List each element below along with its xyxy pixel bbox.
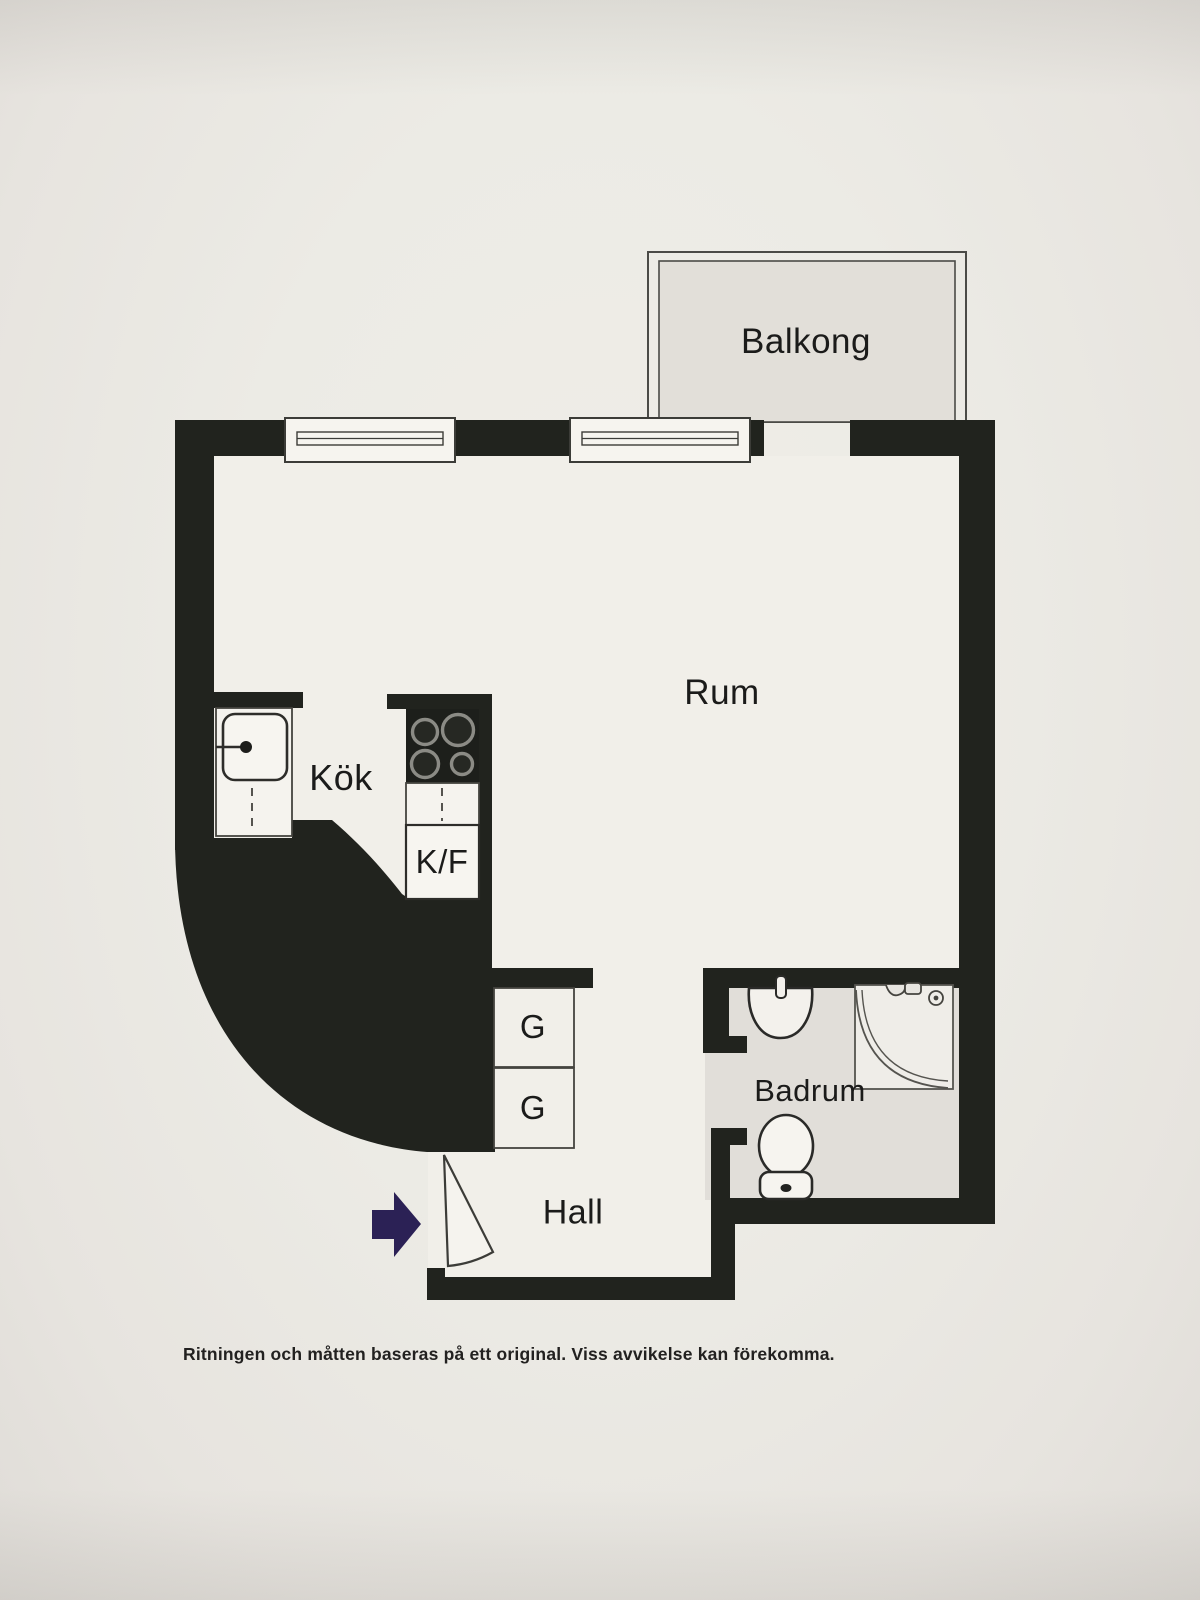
shower-drain-dot [934, 996, 939, 1001]
shower-handle-icon [905, 983, 921, 994]
disclaimer-text: Ritningen och måtten baseras på ett orig… [183, 1344, 835, 1365]
wall-kitchen-stub-right [387, 694, 492, 709]
toilet-icon [759, 1115, 813, 1199]
wall-kitchen-stub-left [175, 692, 303, 708]
shower-icon [855, 983, 953, 1089]
floor-plan-page: Balkong Rum Kök K/F G G Hall Badrum Ritn… [0, 0, 1200, 1600]
entrance-arrow-icon [372, 1192, 421, 1257]
wardrobe-top-label: G [520, 1008, 546, 1046]
entrance-opening-floor [428, 1150, 445, 1272]
wall-above-wardrobes [433, 968, 593, 988]
wall-bathroom-bottom [711, 1198, 995, 1224]
window-icon [570, 418, 750, 462]
basin-faucet-icon [776, 976, 786, 998]
bathroom-label: Badrum [754, 1073, 866, 1109]
window-icon [285, 418, 455, 462]
wall-bathroom-left-lower [711, 1128, 730, 1203]
wall-kitchen-column [478, 694, 492, 986]
wall-top-2 [453, 420, 572, 456]
main-room-label: Rum [684, 673, 759, 713]
hall-label: Hall [543, 1194, 604, 1233]
wall-bathroom-door-stub-upper [711, 1036, 747, 1053]
wardrobe-bottom-label: G [520, 1089, 546, 1127]
toilet-flush-dot [781, 1184, 792, 1192]
wall-hall-bottom [427, 1277, 735, 1300]
kitchen-label: Kök [309, 757, 373, 799]
balcony-label: Balkong [741, 322, 871, 362]
kitchen-faucet-knob [240, 741, 252, 753]
wall-left [175, 420, 214, 850]
fridge-freezer-label: K/F [416, 843, 469, 881]
wall-right [959, 420, 995, 1224]
